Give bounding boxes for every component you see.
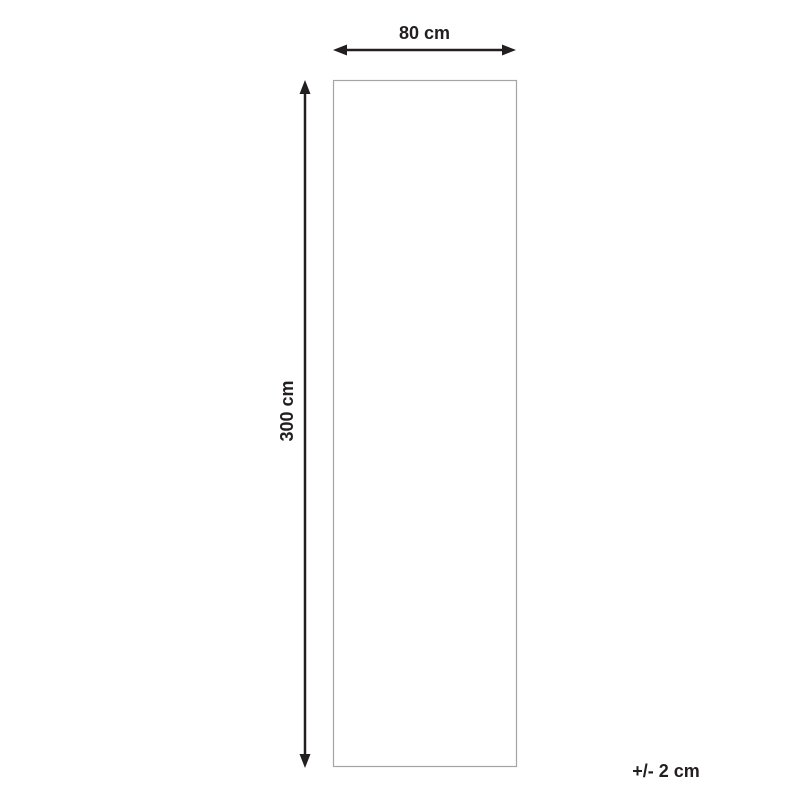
dimension-diagram: 80 cm 300 cm +/- 2 cm <box>0 0 800 800</box>
diagram-canvas <box>0 0 800 800</box>
product-outline-rect <box>334 81 517 767</box>
height-arrow-bottom-head-icon <box>300 754 311 768</box>
tolerance-label: +/- 2 cm <box>616 761 716 782</box>
height-dimension-label: 300 cm <box>276 371 298 451</box>
height-arrow-top-head-icon <box>300 80 311 94</box>
width-dimension-label: 80 cm <box>333 23 516 44</box>
height-dimension-arrow <box>300 80 311 768</box>
width-dimension-arrow <box>333 45 516 56</box>
width-arrow-right-head-icon <box>502 45 516 56</box>
width-arrow-left-head-icon <box>333 45 347 56</box>
